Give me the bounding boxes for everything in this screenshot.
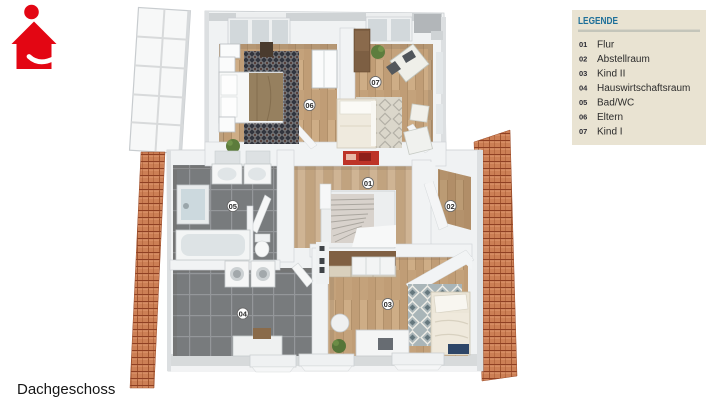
svg-text:07: 07 bbox=[579, 127, 587, 136]
svg-text:Bad/WC: Bad/WC bbox=[597, 98, 634, 109]
svg-text:Eltern: Eltern bbox=[597, 112, 623, 123]
svg-text:05: 05 bbox=[229, 202, 237, 211]
svg-text:01: 01 bbox=[579, 40, 587, 49]
svg-text:02: 02 bbox=[579, 55, 587, 64]
svg-text:05: 05 bbox=[579, 98, 587, 107]
svg-text:LEGENDE: LEGENDE bbox=[578, 15, 618, 27]
svg-text:06: 06 bbox=[579, 113, 587, 122]
svg-text:03: 03 bbox=[384, 300, 392, 309]
svg-text:01: 01 bbox=[364, 179, 372, 188]
svg-text:Flur: Flur bbox=[597, 40, 615, 51]
svg-text:04: 04 bbox=[239, 310, 248, 319]
svg-text:Kind II: Kind II bbox=[597, 69, 625, 80]
svg-text:04: 04 bbox=[579, 84, 588, 93]
svg-text:03: 03 bbox=[579, 69, 587, 78]
svg-text:06: 06 bbox=[305, 101, 313, 110]
svg-text:Abstellraum: Abstellraum bbox=[597, 54, 650, 65]
svg-text:02: 02 bbox=[446, 202, 454, 211]
svg-text:Dachgeschoss: Dachgeschoss bbox=[17, 381, 115, 398]
svg-text:07: 07 bbox=[371, 78, 379, 87]
svg-text:Kind I: Kind I bbox=[597, 127, 623, 138]
svg-text:Hauswirtschaftsraum: Hauswirtschaftsraum bbox=[597, 83, 690, 94]
